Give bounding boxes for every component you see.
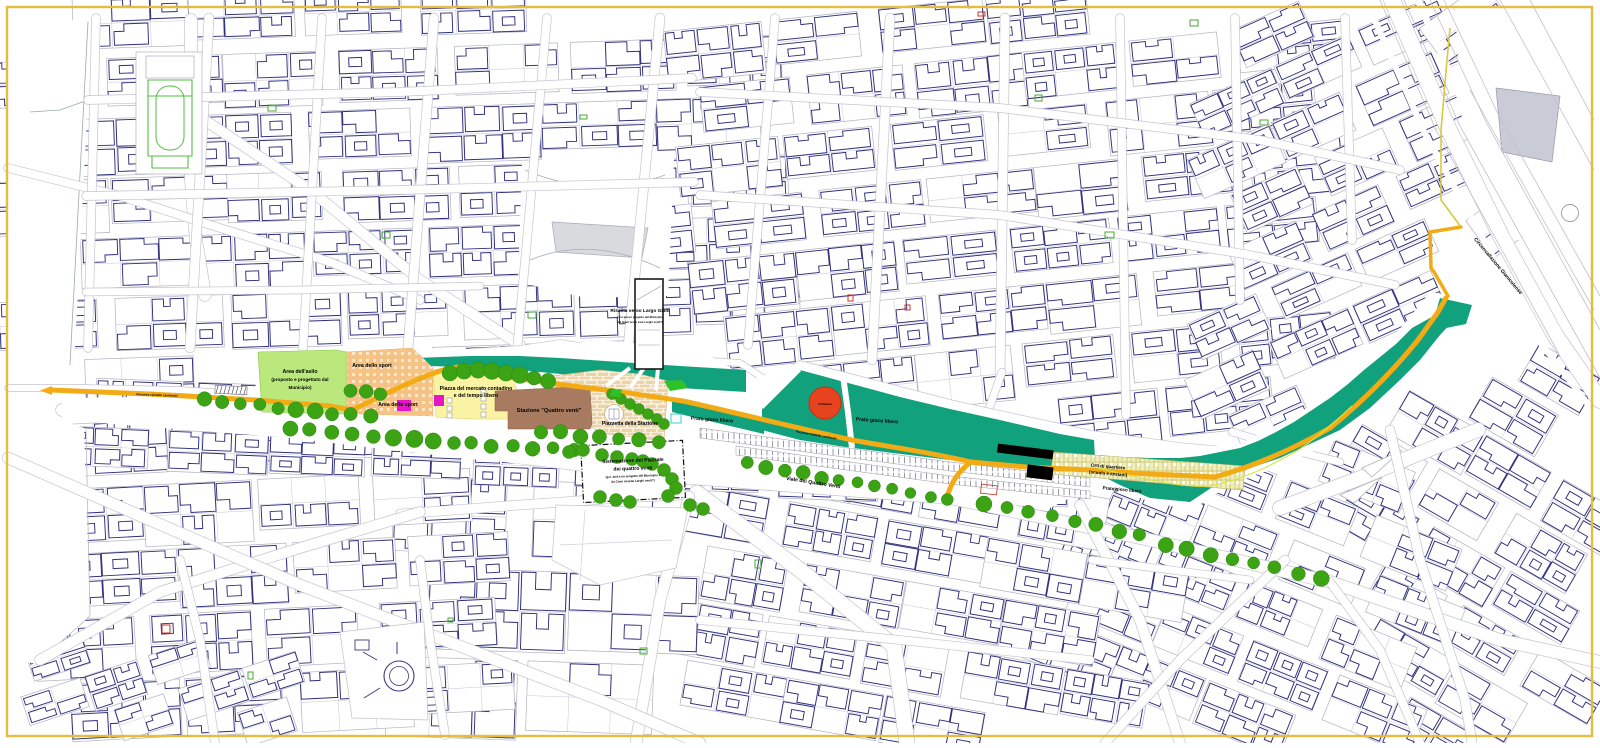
svg-text:Anfiteatro: Anfiteatro	[818, 402, 832, 406]
svg-text:(si è già un progetto del Muni: (si è già un progetto del Municipio	[617, 315, 663, 319]
svg-text:Risalita verso Largo Giani: Risalita verso Largo Giani	[610, 308, 669, 314]
svg-text:Stazione "Quattro venti": Stazione "Quattro venti"	[517, 408, 582, 414]
svg-text:Area dell'asilo: Area dell'asilo	[283, 369, 318, 375]
svg-text:Area dello sport: Area dello sport	[352, 363, 392, 369]
svg-text:e del tempo libero: e del tempo libero	[454, 393, 498, 399]
svg-text:Area dello sport: Area dello sport	[378, 402, 418, 408]
svg-text:Piazza del mercato contadino: Piazza del mercato contadino	[440, 386, 513, 392]
svg-text:Piazzetta della Stazione: Piazzetta della Stazione	[602, 421, 658, 427]
svg-text:Municipio): Municipio)	[289, 385, 312, 390]
svg-text:dei Giani verso este Larghi v: dei Giani verso este Larghi venti?)	[617, 320, 663, 324]
svg-text:(proposto e progettato dal: (proposto e progettato dal	[271, 377, 328, 382]
